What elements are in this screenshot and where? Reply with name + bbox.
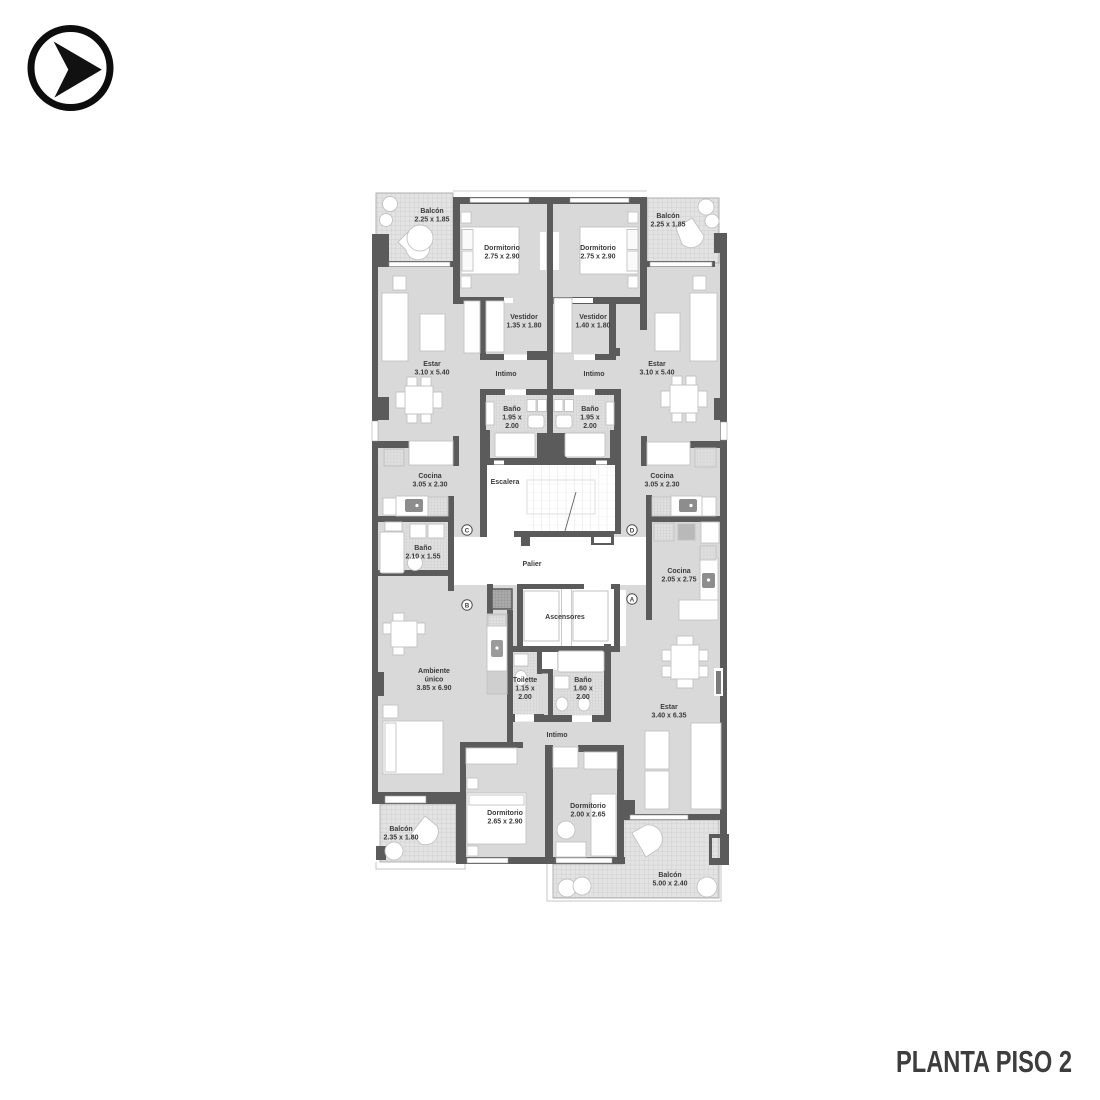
svg-text:Escalera: Escalera [491, 479, 520, 486]
svg-text:Intimo: Intimo [584, 371, 605, 378]
svg-text:D: D [630, 528, 635, 535]
svg-text:Ascensores: Ascensores [545, 614, 585, 621]
svg-text:Dormitorio2.75 x 2.90: Dormitorio2.75 x 2.90 [484, 245, 520, 261]
svg-text:Dormitorio2.00 x 2.65: Dormitorio2.00 x 2.65 [570, 803, 606, 819]
svg-text:B: B [465, 603, 470, 610]
svg-text:Intimo: Intimo [496, 371, 517, 378]
svg-text:Palier: Palier [522, 561, 541, 568]
svg-text:A: A [630, 597, 635, 604]
svg-text:Vestidor1.35 x 1.80: Vestidor1.35 x 1.80 [506, 314, 541, 330]
svg-text:PLANTA PISO 2: PLANTA PISO 2 [896, 1044, 1072, 1079]
svg-text:Dormitorio2.65 x 2.90: Dormitorio2.65 x 2.90 [487, 810, 523, 826]
svg-text:Dormitorio2.75 x 2.90: Dormitorio2.75 x 2.90 [580, 245, 616, 261]
svg-text:Intimo: Intimo [547, 732, 568, 739]
svg-text:C: C [465, 528, 470, 535]
svg-text:Vestidor1.40 x 1.80: Vestidor1.40 x 1.80 [575, 314, 610, 330]
